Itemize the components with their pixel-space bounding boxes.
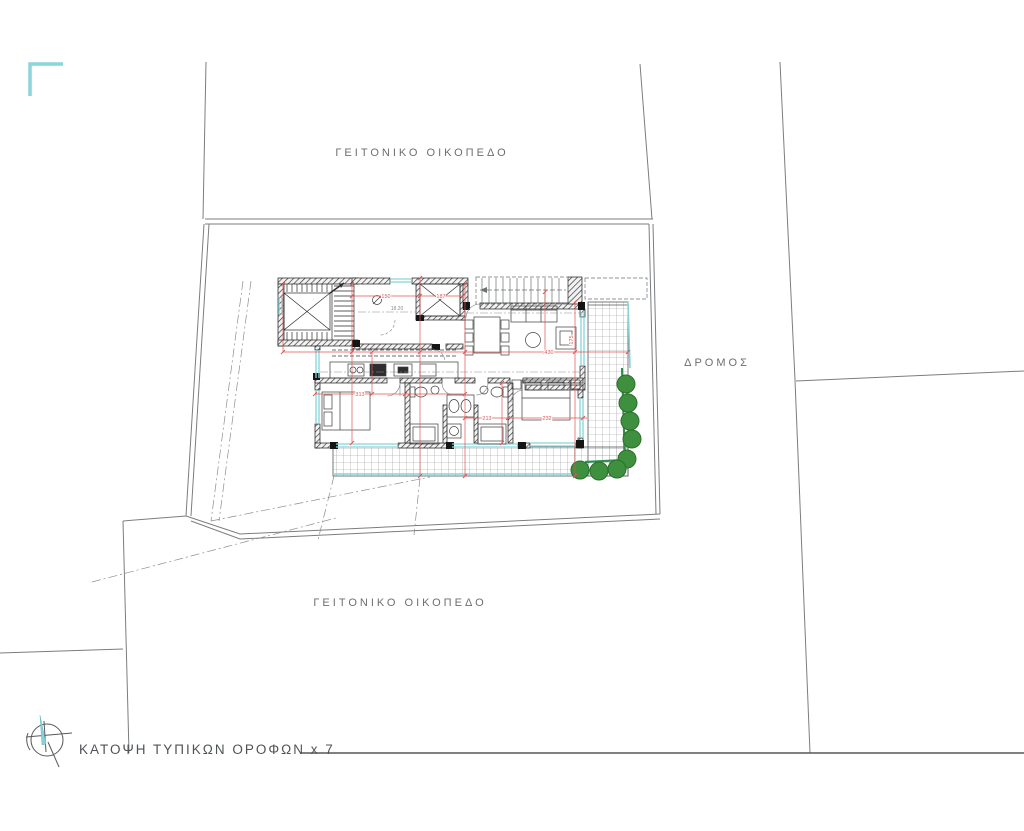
dim-label: 187	[436, 294, 445, 300]
drawing-title: ΚΑΤΟΨΗ ΤΥΠΙΚΩΝ ΟΡΟΦΩΝ x 7	[79, 742, 335, 757]
boundary-central-bottom-double	[186, 514, 660, 539]
north-compass-icon	[26, 715, 72, 767]
boundary-top-left-slant	[203, 62, 206, 219]
kitchen-counter	[330, 350, 458, 378]
window-top	[390, 279, 412, 282]
boundary-central-left-double	[186, 224, 209, 516]
boundary-left-vertical	[123, 521, 129, 753]
window-center-south	[452, 444, 518, 447]
window-living-east	[581, 312, 584, 366]
dim-label: 232	[542, 416, 551, 422]
setback-lines	[92, 281, 430, 582]
neighbor-right-boundary	[796, 371, 1024, 381]
tree	[608, 460, 626, 478]
road-right-boundary	[780, 62, 810, 753]
elevator-shaft-cross	[284, 293, 330, 330]
dim-label: 175	[569, 335, 575, 344]
boundary-corner-jog	[123, 516, 186, 521]
dim-label: 213	[482, 416, 491, 422]
exterior-stair	[476, 277, 647, 304]
stair-treads-bottom	[287, 332, 327, 340]
sheet-corner-mark	[30, 64, 63, 96]
neighbor-plot-label-bottom: ΓΕΙΤΟΝΙΚΟ ΟΙΚΟΠΕΔΟ	[313, 597, 486, 609]
light-shaft	[420, 284, 460, 316]
boundary-top-right-slant	[640, 64, 652, 219]
window-bed2-south	[530, 443, 576, 446]
tree	[617, 375, 635, 393]
boundary-top-plot-bottom-double	[205, 219, 653, 224]
bathroom-2-fixtures	[478, 386, 508, 444]
tree	[571, 461, 589, 479]
stair-treads-top	[287, 284, 327, 292]
site-plan-drawing: 150 187 430 313 213 232 175 18.20	[0, 0, 1024, 831]
stair-treads-right	[334, 286, 354, 336]
tree	[619, 394, 637, 412]
coffee-table	[526, 333, 541, 348]
site-plan-sheet: 150 187 430 313 213 232 175 18.20 ΓΕΙΤΟΝ…	[0, 0, 1024, 831]
boundary-central-right-double	[649, 224, 660, 514]
dim-label: 430	[544, 350, 553, 356]
neighbor-plot-label-top: ΓΕΙΤΟΝΙΚΟ ΟΙΚΟΠΕΔΟ	[335, 147, 508, 159]
washing-machine	[447, 424, 461, 438]
stair-core	[284, 283, 354, 340]
hall-symbol	[373, 296, 382, 305]
window-bed1-west	[316, 390, 319, 424]
dim-label: 313	[355, 392, 364, 398]
boundary-left-horizontal	[0, 649, 123, 653]
tree	[621, 412, 639, 430]
bathroom-1-fixtures	[410, 386, 439, 444]
compass-needle	[40, 715, 46, 745]
hall-area-label: 18.20	[391, 306, 404, 312]
vanity-double-sink	[447, 395, 474, 417]
tree	[590, 462, 608, 480]
balcony-terrace	[333, 302, 641, 480]
dim-label: 150	[381, 294, 390, 300]
upper-balcony-outline	[585, 278, 647, 299]
tree	[623, 430, 641, 448]
window-bed1-south	[336, 444, 398, 447]
dining-table	[465, 317, 509, 355]
road-label: ΔΡΟΜΟΣ	[684, 357, 750, 369]
